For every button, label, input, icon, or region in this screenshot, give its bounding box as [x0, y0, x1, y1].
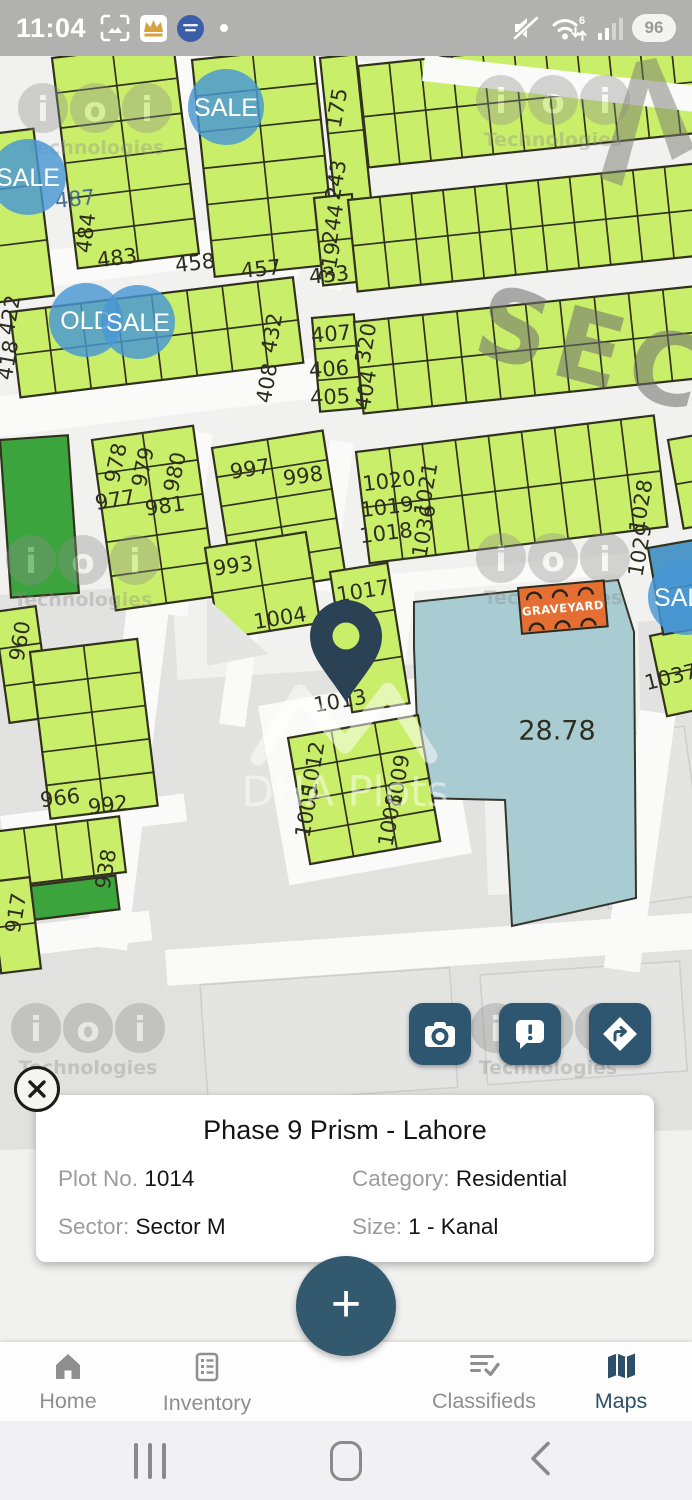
- svg-text:o: o: [76, 1010, 99, 1050]
- plot-label: 405: [309, 384, 350, 410]
- field-category: Category: Residential: [352, 1166, 632, 1192]
- map-action-buttons: [409, 1003, 651, 1065]
- plot-label: 407: [310, 320, 352, 347]
- plot-label: 457: [240, 255, 282, 283]
- plot-label: 458: [174, 249, 217, 278]
- svg-text:o: o: [541, 540, 564, 580]
- close-icon: [27, 1079, 47, 1099]
- svg-text:i: i: [599, 540, 611, 580]
- svg-text:i: i: [141, 90, 153, 130]
- messenger-icon: [177, 15, 204, 42]
- field-size: Size: 1 - Kanal: [352, 1214, 632, 1240]
- svg-text:i: i: [37, 90, 49, 130]
- camera-button[interactable]: [409, 1003, 471, 1065]
- nav-item-inventory[interactable]: Inventory: [147, 1351, 267, 1416]
- status-right: 6 96: [511, 13, 676, 43]
- plot-label: 406: [308, 356, 350, 383]
- svg-text:SALE: SALE: [0, 164, 60, 192]
- svg-text:i: i: [134, 1010, 146, 1050]
- directions-icon: [602, 1016, 638, 1052]
- plot-label: 483: [96, 244, 139, 273]
- signal-icon: [597, 15, 623, 41]
- sale-bubble[interactable]: SALE: [101, 285, 175, 359]
- report-icon: [513, 1017, 547, 1051]
- battery-indicator: 96: [632, 14, 676, 42]
- svg-text:i: i: [599, 82, 611, 122]
- svg-text:Technologies: Technologies: [484, 129, 623, 151]
- plot-info-card: Phase 9 Prism - Lahore Plot No. 1014 Cat…: [36, 1095, 654, 1262]
- back-icon[interactable]: [528, 1439, 552, 1482]
- svg-text:i: i: [495, 82, 507, 122]
- camera-icon: [423, 1018, 457, 1050]
- ioi-watermark: ioiTechnologies: [476, 75, 630, 151]
- report-button[interactable]: [499, 1003, 561, 1065]
- svg-text:o: o: [541, 82, 564, 122]
- sector-label: Sector:: [58, 1214, 129, 1239]
- sector-value: Sector M: [136, 1214, 226, 1239]
- home-icon: [52, 1351, 84, 1381]
- screenshot-icon: [100, 14, 130, 42]
- mute-icon: [511, 14, 541, 42]
- card-title: Phase 9 Prism - Lahore: [58, 1115, 632, 1146]
- android-home-icon[interactable]: [330, 1441, 362, 1481]
- directions-button[interactable]: [589, 1003, 651, 1065]
- field-sector: Sector: Sector M: [58, 1214, 352, 1240]
- sale-bubble[interactable]: SALE: [188, 69, 264, 145]
- wifi6-icon: 6: [550, 13, 588, 43]
- field-plot-no: Plot No. 1014: [58, 1166, 352, 1192]
- plus-icon: +: [331, 1274, 361, 1334]
- clock: 11:04: [16, 13, 86, 44]
- classifieds-icon: [467, 1351, 501, 1381]
- notification-dot-icon: [220, 24, 228, 32]
- svg-text:i: i: [129, 542, 141, 582]
- svg-text:Technologies: Technologies: [14, 589, 153, 611]
- size-label: Size:: [352, 1214, 402, 1239]
- category-value: Residential: [456, 1166, 567, 1191]
- svg-text:SALE: SALE: [654, 584, 692, 612]
- recents-icon[interactable]: [134, 1443, 166, 1479]
- svg-text:i: i: [495, 540, 507, 580]
- svg-text:o: o: [71, 542, 94, 582]
- maps-icon: [605, 1351, 637, 1381]
- ioi-watermark: ioiTechnologies: [6, 535, 160, 611]
- graveyard-marker[interactable]: GRAVEYARD: [518, 581, 608, 634]
- nav-item-home[interactable]: Home: [18, 1351, 118, 1414]
- add-button[interactable]: +: [296, 1256, 396, 1356]
- nav-item-maps[interactable]: Maps: [571, 1351, 671, 1414]
- svg-text:i: i: [25, 542, 37, 582]
- status-bar: 11:04: [0, 0, 692, 56]
- plot-label: 992: [87, 791, 130, 820]
- inventory-icon: [191, 1351, 223, 1383]
- plot-no-label: Plot No.: [58, 1166, 138, 1191]
- nav-item-classifieds[interactable]: Classifieds: [414, 1351, 554, 1414]
- svg-text:o: o: [83, 90, 106, 130]
- plot-label: 966: [39, 784, 82, 813]
- svg-text:SALE: SALE: [194, 94, 258, 122]
- size-value: 1 - Kanal: [408, 1214, 498, 1239]
- svg-text:SALE: SALE: [106, 309, 170, 337]
- category-label: Category:: [352, 1166, 450, 1191]
- svg-text:DHA Plots: DHA Plots: [241, 767, 448, 816]
- card-fields: Plot No. 1014 Category: Residential Sect…: [58, 1166, 632, 1240]
- app-screen: SEC ioiTechnologiesioiTechnologiesioiTec…: [0, 0, 692, 1500]
- close-card-button[interactable]: [14, 1066, 60, 1112]
- plot-label: 28.78: [518, 716, 595, 747]
- crown-app-icon: [140, 15, 167, 42]
- android-navigation-bar: [0, 1421, 692, 1500]
- svg-text:i: i: [30, 1010, 42, 1050]
- svg-text:6: 6: [579, 15, 585, 27]
- plot-no-value: 1014: [144, 1166, 194, 1191]
